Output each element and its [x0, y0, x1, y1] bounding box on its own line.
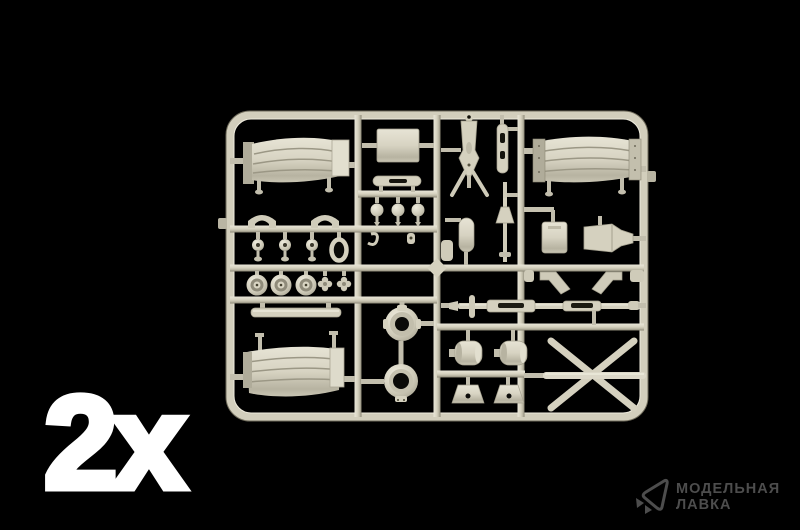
sprue-photo: 2x МОДЕЛЬНАЯ ЛАВКА [0, 0, 800, 530]
quantity-label: 2x [44, 369, 185, 516]
watermark-line2: ЛАВКА [676, 497, 731, 513]
part-v3-tab [524, 270, 534, 282]
part-frame-tab [630, 270, 644, 282]
part-wheel-hub-row [247, 271, 317, 296]
frame-nub-right [647, 171, 656, 182]
frame-nub-left [218, 218, 227, 229]
photo-stage: 2x МОДЕЛЬНАЯ ЛАВКА [0, 0, 800, 530]
part-spool-row [371, 197, 425, 227]
part-small-block [441, 240, 453, 261]
watermark-line1: МОДЕЛЬНАЯ [676, 481, 780, 497]
